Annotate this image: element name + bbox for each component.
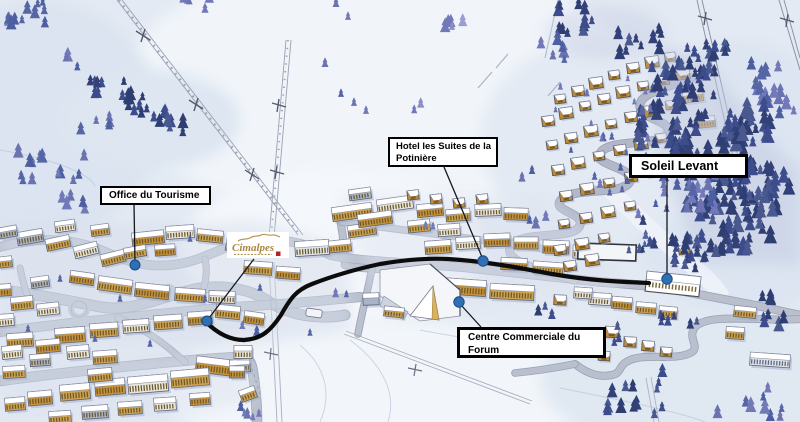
svg-text:Cimalpes: Cimalpes xyxy=(232,242,274,254)
